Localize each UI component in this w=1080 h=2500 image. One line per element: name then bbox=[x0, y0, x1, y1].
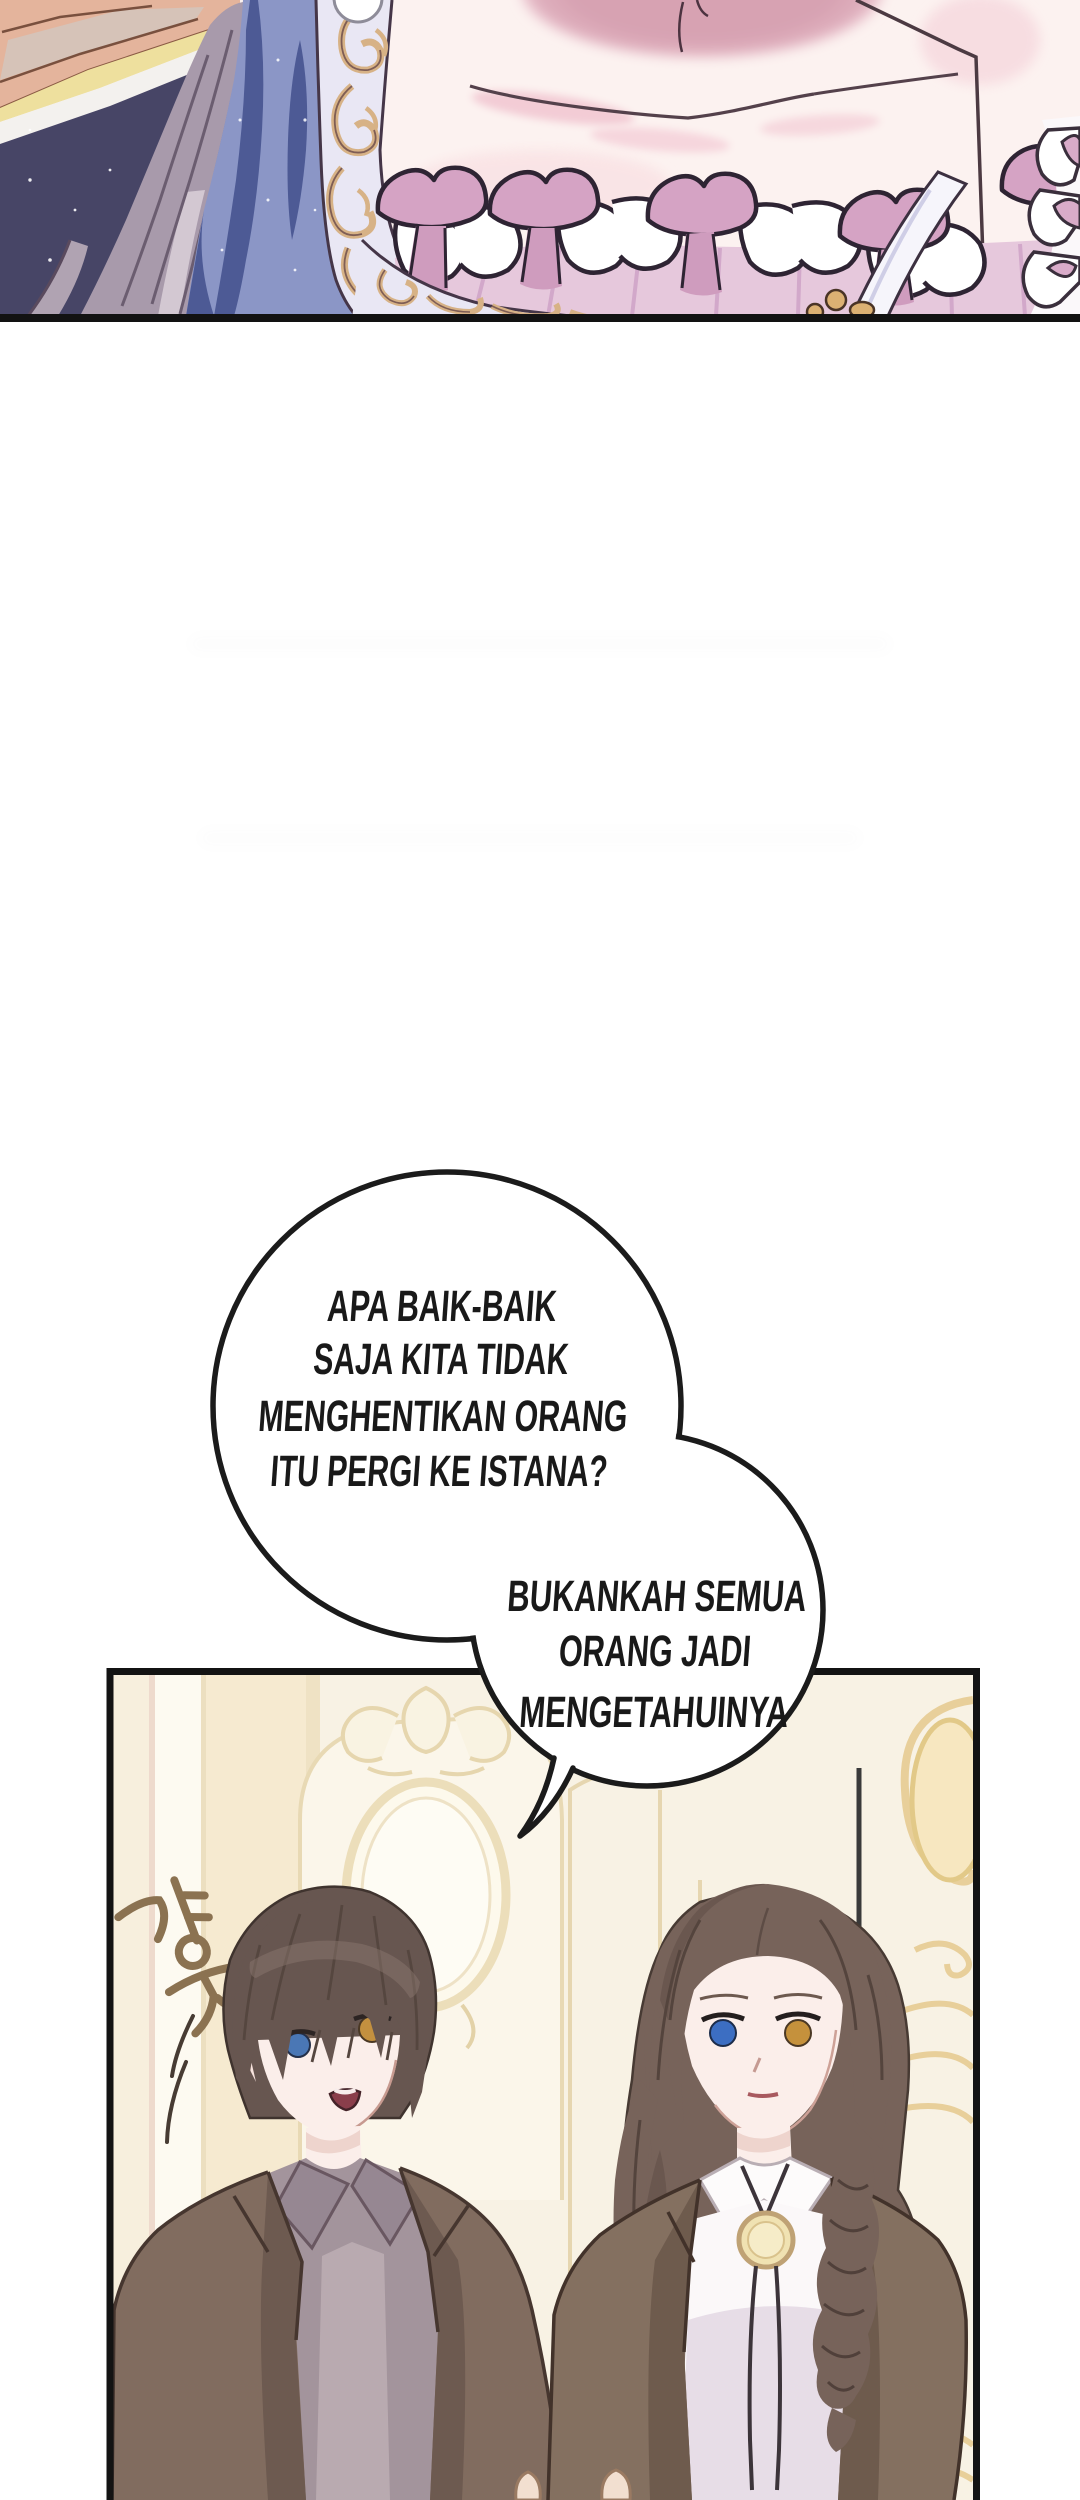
svg-text:SAJA KITA TIDAK: SAJA KITA TIDAK bbox=[312, 1335, 571, 1384]
svg-text:ORANG JADI: ORANG JADI bbox=[557, 1627, 752, 1676]
svg-text:BUKANKAH SEMUA: BUKANKAH SEMUA bbox=[506, 1572, 808, 1621]
svg-text:MENGETAHUINYA: MENGETAHUINYA bbox=[518, 1688, 790, 1737]
svg-text:MENGHENTIKAN ORANG: MENGHENTIKAN ORANG bbox=[257, 1392, 629, 1441]
svg-text:APA BAIK-BAIK: APA BAIK-BAIK bbox=[326, 1282, 559, 1331]
svg-text:ITU PERGI KE ISTANA?: ITU PERGI KE ISTANA? bbox=[269, 1447, 609, 1496]
